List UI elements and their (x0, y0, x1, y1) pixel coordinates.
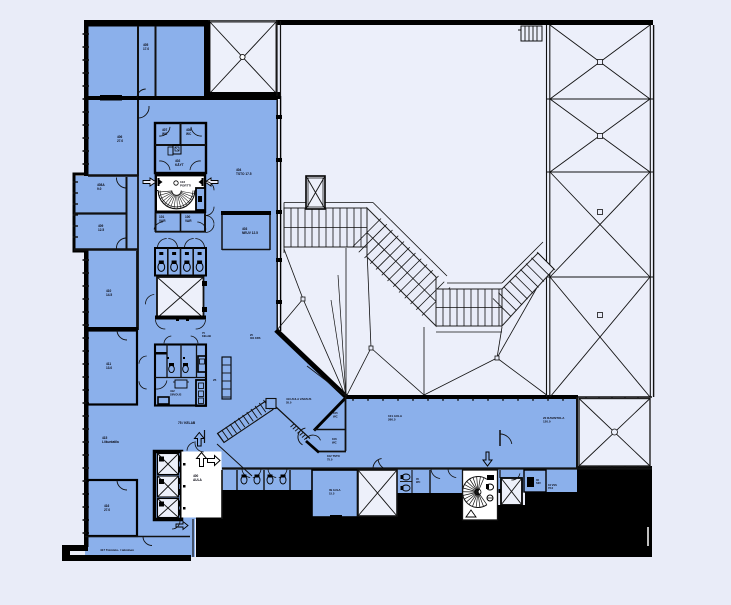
svg-text:260.5: 260.5 (388, 418, 396, 422)
svg-text:SIIVOUS: SIIVOUS (170, 392, 181, 396)
svg-text:12.5: 12.5 (98, 228, 104, 232)
svg-text:PORTTI: PORTTI (180, 184, 191, 188)
svg-text:SIIV: SIIV (536, 481, 541, 485)
svg-text:NEUV 12.5: NEUV 12.5 (242, 231, 258, 235)
svg-text:13.0: 13.0 (106, 366, 112, 370)
svg-text:417 Toimisto- / tekninen: 417 Toimisto- / tekninen (100, 548, 134, 552)
svg-text:75 / KELAB: 75 / KELAB (178, 421, 196, 425)
svg-text:WC: WC (416, 480, 420, 484)
svg-text:301 KRS: 301 KRS (250, 336, 261, 340)
svg-text:AULA: AULA (193, 478, 203, 482)
svg-text:TSTO 17.5: TSTO 17.5 (236, 172, 252, 176)
svg-text:WC: WC (333, 414, 338, 418)
svg-text:KÄYT: KÄYT (175, 163, 184, 167)
svg-text:25: 25 (213, 378, 217, 382)
svg-text:KELAB: KELAB (202, 334, 211, 338)
svg-text:VAR: VAR (159, 219, 166, 223)
svg-text:WC: WC (186, 132, 192, 136)
svg-text:75.0: 75.0 (327, 457, 333, 461)
svg-text:120.0: 120.0 (543, 420, 551, 424)
svg-text:VAR: VAR (185, 219, 192, 223)
svg-text:76.0: 76.0 (548, 486, 554, 490)
svg-text:27.0: 27.0 (104, 508, 110, 512)
svg-text:14.5: 14.5 (106, 293, 112, 297)
svg-text:Liikuntatila: Liikuntatila (102, 440, 119, 444)
svg-text:17.0: 17.0 (143, 47, 149, 51)
svg-text:15.5: 15.5 (329, 491, 335, 495)
svg-text:55.0: 55.0 (286, 400, 292, 404)
svg-text:27.0: 27.0 (117, 139, 123, 143)
svg-text:WC: WC (162, 132, 168, 136)
svg-text:9.0: 9.0 (97, 187, 102, 191)
svg-text:WC: WC (332, 440, 337, 444)
